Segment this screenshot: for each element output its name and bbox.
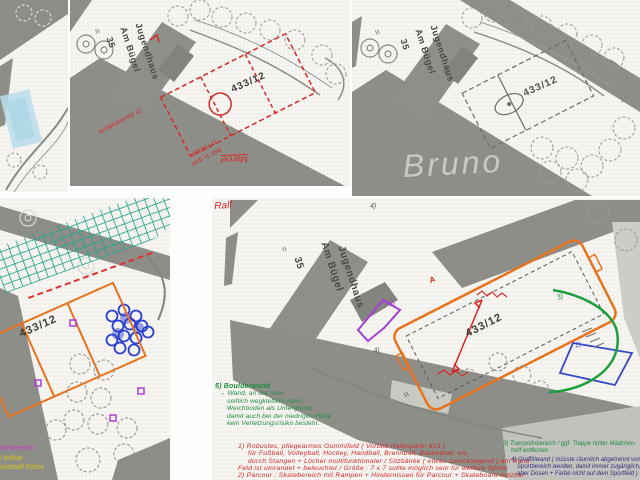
road-band-upper	[460, 0, 640, 112]
road-sliver	[352, 16, 362, 68]
note-line: durch Stangen + Löcher multifunktionaler…	[238, 458, 530, 465]
trampoline-curve	[548, 290, 618, 392]
purple-corner-markers	[35, 320, 144, 421]
note-line: Sportbereich werden, damit immer zugängl…	[511, 464, 640, 471]
bottom-left-overlay	[0, 198, 170, 480]
author-name: Ralf	[214, 201, 232, 212]
plan-bottom-left: 433/12 olinbereich l teilbar sketball Kö…	[0, 198, 170, 480]
road-sliver	[224, 232, 238, 286]
marcel-linework	[70, 0, 350, 186]
tree-icon	[33, 165, 47, 179]
ralf-linework	[212, 198, 640, 480]
plan-marcel: = 35 Am Bügel Jugendhaus 433/12 2x Baske…	[70, 0, 350, 186]
note-line: Weichboden als Untergrund,	[215, 405, 331, 412]
note-line: 4) Graffitiwand ( müsste räumlich abgetr…	[511, 457, 640, 464]
scanned-plan-collage: = 35 Am Bügel Jugendhaus 433/12 2x Baske…	[0, 0, 640, 480]
note-line: Feld ist umrandet + beleuchtet / Größe :…	[238, 465, 530, 472]
orange-field	[0, 283, 146, 417]
note-line: kein Verletzungsrisiko besteht.	[215, 420, 331, 427]
note-line: 3) Trampolinbereich / ggf. Treppe hinter…	[503, 441, 636, 448]
tree-pair	[361, 39, 397, 63]
plan-top-left-fragment	[0, 0, 68, 192]
note-parcours: 2) Parcour : Skatebereich mit Rampen + H…	[238, 472, 530, 479]
note-line: 1) Robustes, pflegearmes Gummifeld ( Vor…	[238, 443, 530, 450]
marker-4-graffiti: 4)	[370, 203, 376, 210]
road-corner	[70, 0, 92, 32]
note-line: damit auch bei der niedrigen Höhe	[215, 413, 331, 420]
top-left-linework	[0, 0, 68, 192]
note-graffitiwand: 4) Graffitiwand ( müsste räumlich abgetr…	[511, 457, 640, 478]
note-boulderwand-title: 5) Boulderwand	[215, 383, 331, 390]
note-line: aber Dosen + Farbe nicht auf dem Sportfe…	[511, 471, 640, 478]
note-trampolinbereich: 3) Trampolinbereich / ggf. Treppe hinter…	[503, 441, 636, 455]
plan-ralf: Ralf = 35 Am Bügel Jugendhaus 5) A 4) 4)…	[212, 198, 640, 480]
legend-magenta: olinbereich	[0, 445, 34, 452]
legend-yellow-1: l teilbar	[0, 455, 23, 462]
legend-yellow-2: sketball Körbe	[0, 464, 44, 471]
author-name: Marcel	[221, 154, 248, 164]
road-margin	[612, 222, 640, 358]
note-line: seitlich wegklettern kann.	[215, 398, 331, 405]
note-gummifeld: 1) Robustes, pflegearmes Gummifeld ( Vor…	[238, 443, 530, 479]
note-line: treff entfernen	[503, 448, 636, 455]
road-corner	[230, 200, 258, 228]
note-boulderwand: 5) Boulderwand → Wand, an der man seitli…	[215, 383, 331, 427]
tree-icon	[7, 153, 21, 167]
note-line: für Fußball, Volleyball, Hockey, Handbal…	[238, 450, 530, 457]
road-band	[0, 0, 68, 60]
note-line: → Wand, an der man	[215, 390, 331, 397]
red-scribble-note	[477, 291, 507, 297]
tree-cluster	[46, 354, 137, 472]
author-name: Bruno	[402, 145, 504, 182]
marker-4-graffiti: 4)	[373, 347, 380, 355]
